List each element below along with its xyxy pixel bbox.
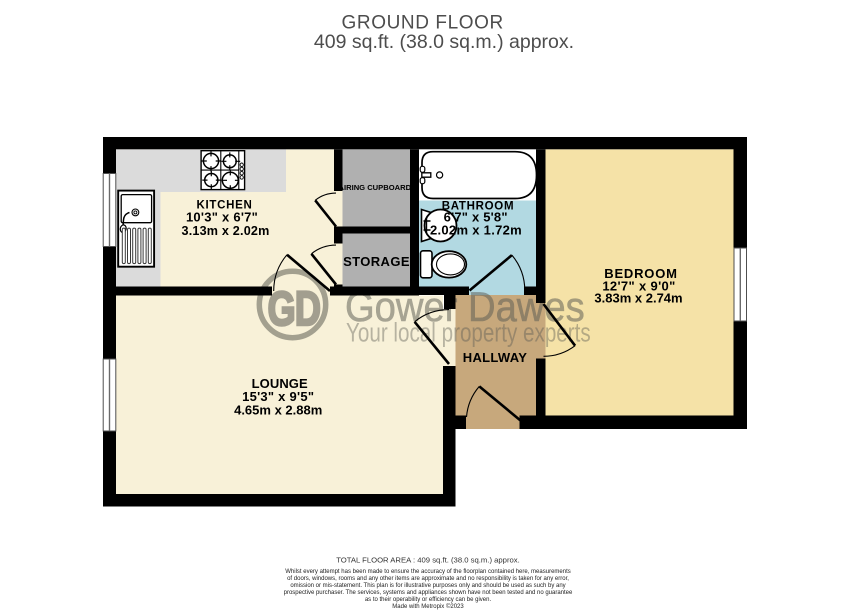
svg-text:10'3" x 6'7": 10'3" x 6'7" xyxy=(186,210,258,225)
svg-text:3.83m x 2.74m: 3.83m x 2.74m xyxy=(594,291,682,306)
svg-text:STORAGE: STORAGE xyxy=(343,254,410,269)
svg-text:HALLWAY: HALLWAY xyxy=(463,350,527,365)
svg-text:Your local property experts: Your local property experts xyxy=(346,318,591,348)
svg-text:Whilst every attempt has been: Whilst every attempt has been made to en… xyxy=(285,569,571,575)
svg-text:of doors, windows, rooms and a: of doors, windows, rooms and any other i… xyxy=(287,576,569,582)
svg-text:AIRING CUPBOARD: AIRING CUPBOARD xyxy=(339,183,412,192)
svg-text:TOTAL FLOOR AREA : 409 sq.ft.: TOTAL FLOOR AREA : 409 sq.ft. (38.0 sq.m… xyxy=(336,556,520,565)
svg-text:as to their operability or eff: as to their operability or efficiency ca… xyxy=(365,597,492,603)
svg-text:2.02m x 1.72m: 2.02m x 1.72m xyxy=(430,223,522,238)
svg-text:3.13m x 2.02m: 3.13m x 2.02m xyxy=(181,224,269,238)
svg-text:4.65m x 2.88m: 4.65m x 2.88m xyxy=(234,403,322,418)
svg-text:prospective purchaser. The ser: prospective purchaser. The services, sys… xyxy=(284,590,573,596)
svg-text:omission or mis-statement. Thi: omission or mis-statement. This plan is … xyxy=(290,583,565,589)
svg-text:Made with Metropix ©2023: Made with Metropix ©2023 xyxy=(392,603,464,610)
svg-text:GD: GD xyxy=(268,282,320,335)
svg-text:409 sq.ft. (38.0 sq.m.) approx: 409 sq.ft. (38.0 sq.m.) approx. xyxy=(314,31,574,53)
